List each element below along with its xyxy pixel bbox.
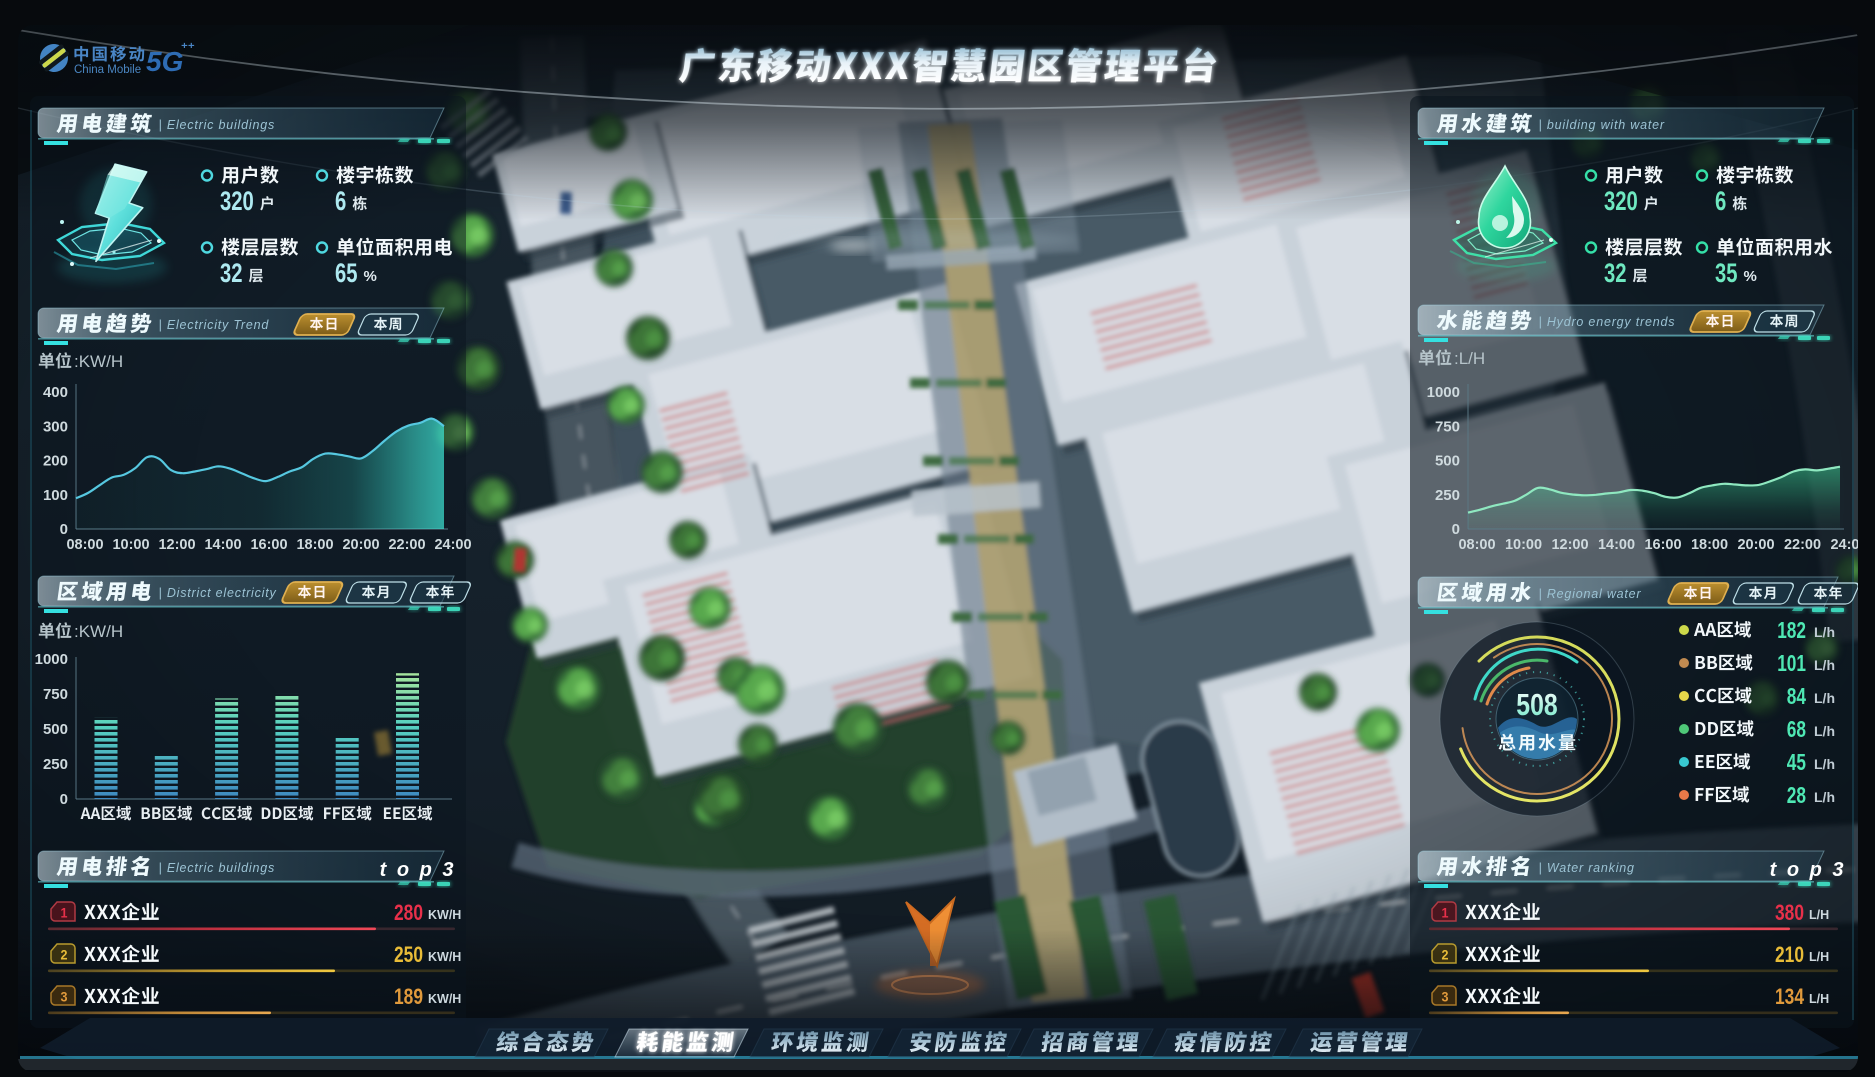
svg-text:1: 1 (1442, 905, 1449, 921)
svg-text:| building with water: | building with water (1539, 118, 1665, 132)
svg-text:22:00: 22:00 (1784, 537, 1821, 553)
svg-text:KW/H: KW/H (428, 908, 461, 922)
svg-text:134: 134 (1775, 984, 1805, 1009)
svg-text:280: 280 (394, 900, 423, 925)
svg-text:L/H: L/H (1809, 950, 1829, 964)
svg-text:68: 68 (1787, 716, 1806, 742)
svg-text:210: 210 (1775, 942, 1804, 967)
svg-text:L/h: L/h (1814, 690, 1835, 706)
svg-text:35: 35 (1715, 258, 1738, 288)
svg-text:L/h: L/h (1814, 789, 1835, 805)
svg-text:2: 2 (1442, 947, 1449, 963)
svg-text:1000: 1000 (35, 651, 68, 668)
svg-text:0: 0 (60, 791, 68, 808)
svg-text:0: 0 (1452, 521, 1460, 538)
svg-text:28: 28 (1787, 782, 1806, 808)
svg-text:08:00: 08:00 (1458, 537, 1495, 553)
svg-text:08:00: 08:00 (66, 537, 103, 553)
svg-text::L/H: :L/H (1454, 349, 1485, 368)
svg-text:22:00: 22:00 (388, 537, 425, 553)
svg-text:t o p 3: t o p 3 (380, 859, 456, 881)
svg-text:84: 84 (1787, 683, 1806, 709)
svg-text:L/H: L/H (1809, 908, 1829, 922)
svg-text:| Electric buildings: | Electric buildings (159, 861, 276, 875)
svg-text:750: 750 (43, 686, 68, 703)
svg-text:1: 1 (61, 905, 68, 921)
svg-text:L/h: L/h (1814, 723, 1835, 739)
svg-text:100: 100 (43, 487, 68, 504)
svg-text:20:00: 20:00 (342, 537, 379, 553)
svg-text:3: 3 (1442, 989, 1449, 1005)
svg-text:200: 200 (43, 453, 68, 470)
svg-text:18:00: 18:00 (296, 537, 333, 553)
svg-text:KW/H: KW/H (428, 992, 461, 1006)
svg-text:500: 500 (1435, 453, 1460, 470)
svg-text:182: 182 (1777, 617, 1806, 643)
svg-text:32: 32 (1604, 258, 1627, 288)
svg-text:L/h: L/h (1814, 624, 1835, 640)
svg-text:| Regional water: | Regional water (1539, 587, 1642, 601)
svg-text:320: 320 (220, 186, 254, 216)
svg-text:0: 0 (60, 521, 68, 538)
svg-text:189: 189 (394, 984, 423, 1009)
svg-text:65: 65 (335, 258, 358, 288)
svg-text:⁺⁺: ⁺⁺ (181, 40, 195, 55)
svg-text:L/H: L/H (1809, 992, 1829, 1006)
svg-text:L/h: L/h (1814, 756, 1835, 772)
svg-text:320: 320 (1604, 186, 1638, 216)
svg-text:5G: 5G (146, 46, 183, 77)
svg-text:250: 250 (43, 756, 68, 773)
svg-text:t o p 3: t o p 3 (1770, 859, 1846, 881)
svg-text:380: 380 (1775, 900, 1804, 925)
svg-text:16:00: 16:00 (1644, 537, 1681, 553)
svg-text:10:00: 10:00 (112, 537, 149, 553)
svg-text:300: 300 (43, 418, 68, 435)
svg-text:101: 101 (1777, 650, 1806, 676)
svg-text:12:00: 12:00 (1551, 537, 1588, 553)
svg-text:20:00: 20:00 (1737, 537, 1774, 553)
svg-text:32: 32 (220, 258, 243, 288)
svg-text:6: 6 (1715, 186, 1726, 216)
svg-text:250: 250 (394, 942, 423, 967)
svg-text:%: % (1744, 268, 1757, 285)
svg-text:500: 500 (43, 721, 68, 738)
svg-text:%: % (364, 268, 377, 285)
svg-text:10:00: 10:00 (1505, 537, 1542, 553)
svg-text::KW/H: :KW/H (74, 352, 123, 371)
svg-text:18:00: 18:00 (1691, 537, 1728, 553)
svg-text:12:00: 12:00 (158, 537, 195, 553)
svg-text:| Hydro energy trends: | Hydro energy trends (1539, 315, 1676, 329)
svg-text:L/h: L/h (1814, 657, 1835, 673)
svg-text:2: 2 (61, 947, 68, 963)
svg-text:| Water ranking: | Water ranking (1539, 861, 1635, 875)
svg-text:China Mobile: China Mobile (74, 64, 141, 76)
svg-text::KW/H: :KW/H (74, 622, 123, 641)
svg-text:| District electricity: | District electricity (159, 586, 277, 600)
svg-text:6: 6 (335, 186, 346, 216)
svg-text:| Electric buildings: | Electric buildings (159, 118, 276, 132)
svg-text:14:00: 14:00 (1598, 537, 1635, 553)
svg-text:| Electricity Trend: | Electricity Trend (159, 318, 270, 332)
svg-text:400: 400 (43, 384, 68, 401)
svg-text:KW/H: KW/H (428, 950, 461, 964)
svg-text:14:00: 14:00 (204, 537, 241, 553)
svg-text:750: 750 (1435, 418, 1460, 435)
svg-text:16:00: 16:00 (250, 537, 287, 553)
svg-text:24:00: 24:00 (434, 537, 471, 553)
svg-text:45: 45 (1787, 749, 1806, 775)
svg-text:250: 250 (1435, 487, 1460, 504)
svg-text:1000: 1000 (1427, 384, 1460, 401)
svg-text:508: 508 (1516, 687, 1557, 722)
svg-text:3: 3 (61, 989, 68, 1005)
